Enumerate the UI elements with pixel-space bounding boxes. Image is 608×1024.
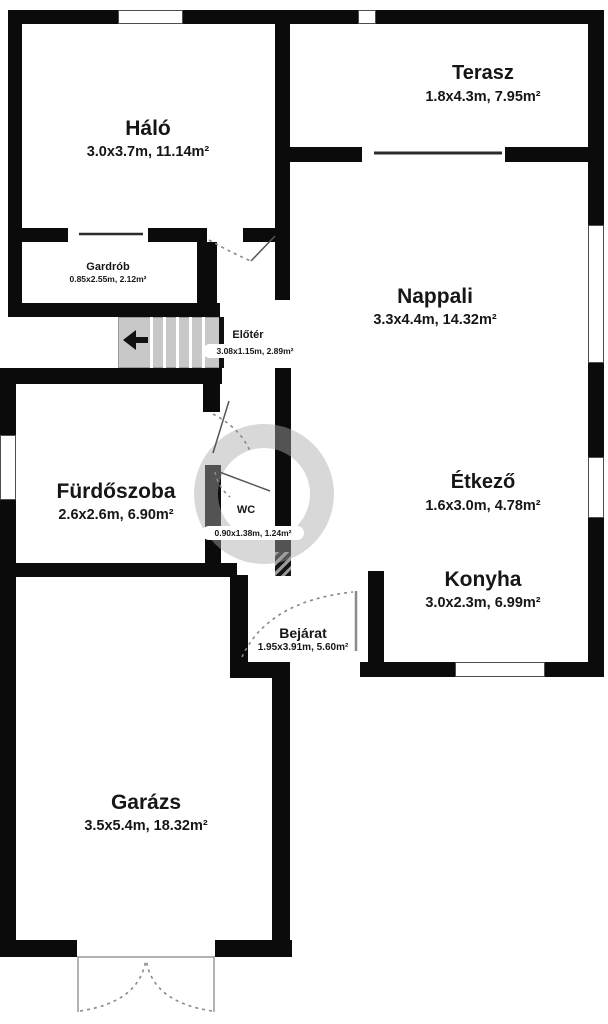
furdoszoba-door-arc — [213, 414, 250, 451]
wall — [290, 10, 358, 24]
room-label-konyha: Konyha 3.0x2.3m, 6.99m² — [363, 566, 603, 613]
garage-door-frame — [78, 956, 214, 1012]
room-label-furdoszoba: Fürdőszoba 2.6x2.6m, 6.90m² — [0, 478, 232, 525]
room-dims: 2.6x2.6m, 6.90m² — [0, 505, 232, 525]
wall — [215, 940, 292, 957]
room-dims: 3.3x4.4m, 14.32m² — [315, 310, 555, 330]
wall — [272, 672, 290, 942]
window — [118, 10, 183, 24]
room-dims: 1.95x3.91m, 5.60m² — [233, 641, 373, 655]
wall — [505, 147, 588, 162]
staircase — [118, 317, 222, 368]
room-name: Garázs — [26, 789, 266, 816]
room-label-wc: WC — [220, 504, 272, 517]
room-label-gardrob: Gardrób 0.85x2.55m, 2.12m² — [28, 261, 188, 285]
stair-riser — [202, 317, 205, 368]
stair-riser — [176, 317, 179, 368]
window — [588, 225, 604, 363]
room-name: Fürdőszoba — [0, 478, 232, 505]
room-dims: 1.6x3.0m, 4.78m² — [363, 496, 603, 516]
floor-plan: Háló 3.0x3.7m, 11.14m² Terasz 1.8x4.3m, … — [0, 0, 608, 1024]
room-name: Nappali — [315, 283, 555, 310]
stair-riser — [150, 317, 153, 368]
room-dims: 0.85x2.55m, 2.12m² — [28, 274, 188, 285]
garage-door-arc-left — [80, 959, 146, 1011]
wall — [588, 363, 604, 457]
stair-edge — [219, 317, 224, 368]
window — [358, 10, 376, 24]
window — [455, 662, 545, 677]
stair-riser — [163, 317, 166, 368]
room-label-eloter: Előtér — [220, 329, 276, 342]
wall — [148, 228, 207, 242]
wall — [8, 228, 68, 242]
room-name: Háló — [28, 115, 268, 142]
room-label-terasz: Terasz 1.8x4.3m, 7.95m² — [363, 60, 603, 107]
wall — [8, 24, 22, 317]
room-name: Gardrób — [28, 261, 188, 274]
room-name: Előtér — [220, 329, 276, 342]
room-label-etkezo: Étkező 1.6x3.0m, 4.78m² — [363, 469, 603, 516]
wall — [545, 662, 604, 677]
garage-door-arc-right — [146, 959, 212, 1011]
stair-riser — [189, 317, 192, 368]
wall — [0, 563, 237, 577]
room-label-halo: Háló 3.0x3.7m, 11.14m² — [28, 115, 268, 162]
wall — [376, 10, 604, 24]
room-name: Bejárat — [233, 625, 373, 641]
wall — [0, 940, 77, 957]
room-dims: 3.0x3.7m, 11.14m² — [28, 142, 268, 162]
room-label-bejarat: Bejárat 1.95x3.91m, 5.60m² — [233, 625, 373, 655]
wall — [8, 10, 118, 24]
room-label-nappali: Nappali 3.3x4.4m, 14.32m² — [315, 283, 555, 330]
wall — [588, 24, 604, 225]
wall-cut-hatch — [275, 552, 291, 576]
wall — [360, 662, 455, 677]
room-name: Étkező — [363, 469, 603, 496]
room-dims: 3.5x5.4m, 18.32m² — [26, 816, 266, 836]
wall — [290, 147, 362, 162]
wall — [0, 384, 16, 435]
wall — [183, 10, 290, 24]
wall — [0, 368, 222, 384]
room-name: Konyha — [363, 566, 603, 593]
room-name: WC — [220, 504, 272, 517]
wall — [8, 303, 220, 317]
wall — [275, 24, 290, 300]
room-dims-eloter: 3.08x1.15m, 2.89m² — [203, 344, 307, 358]
room-dims: 3.0x2.3m, 6.99m² — [363, 593, 603, 613]
room-label-garazs: Garázs 3.5x5.4m, 18.32m² — [26, 789, 266, 836]
room-dims-wc: 0.90x1.38m, 1.24m² — [202, 526, 304, 540]
room-dims: 1.8x4.3m, 7.95m² — [363, 87, 603, 107]
wall — [203, 384, 220, 412]
room-name: Terasz — [363, 60, 603, 87]
